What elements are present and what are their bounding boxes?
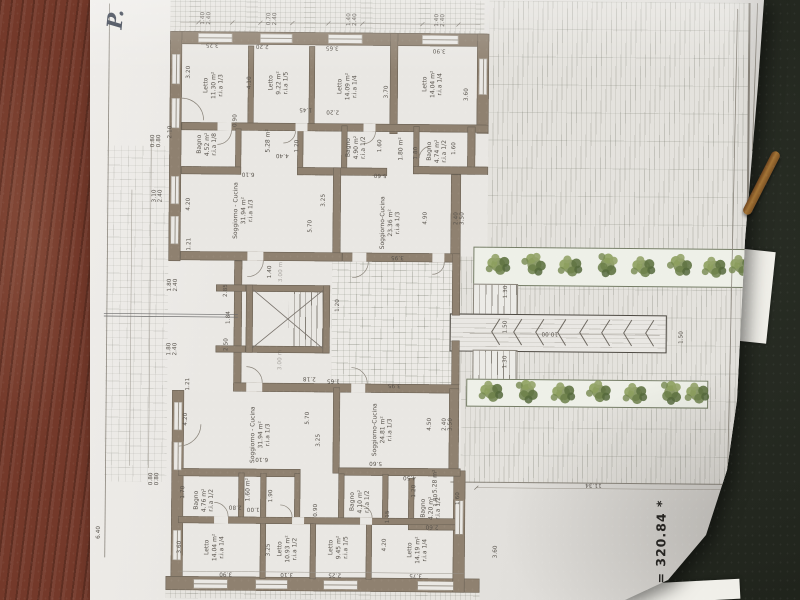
room-name: Bagno [426, 139, 434, 163]
dimension-label: 3.25 [316, 434, 322, 447]
dimension-label: 1.20 [411, 485, 417, 498]
stairwell-steps [289, 290, 324, 348]
dimension-label: 5.60 [369, 460, 382, 466]
dimension-label: 1.60 [451, 142, 457, 155]
dimension-label: 3.60 [493, 545, 499, 558]
room-ria: r.i.a 1/2 [292, 535, 300, 562]
dimension-label: 3.60 [464, 88, 470, 101]
dimension-label: 4.90 [423, 212, 429, 225]
dimension-label: 10.00 [541, 330, 558, 336]
dimension-label: 3.25 [266, 543, 272, 556]
room-label-l-bagno-420: Bagno4.20 m²r.i.a 1/2 [420, 496, 443, 520]
dimension-label: 2.50 [223, 338, 229, 351]
wall-segment [332, 387, 340, 473]
room-area: 5.28 m² [431, 470, 439, 494]
dimension-label: 5.70 [307, 220, 313, 233]
room-ria: r.i.a 1/5 [343, 536, 351, 560]
room-area: 1.80 m² [397, 137, 405, 161]
dimension-label: 1.60 [455, 492, 461, 505]
dimension-label: 2.20 [326, 108, 339, 114]
dimension-label: 4.20 [382, 538, 388, 551]
room-name: Bagno [196, 132, 204, 156]
dimension-label: 1.84 [226, 311, 232, 324]
room-ria: r.i.a 1/4 [437, 71, 445, 98]
door-opening [295, 123, 307, 131]
room-area: 4.52 m² [203, 133, 211, 157]
wall-segment [366, 524, 372, 580]
dimension-label: 6.40 [96, 526, 102, 539]
wall-segment [389, 33, 398, 134]
dimension-label: 1.21 [186, 238, 192, 251]
wall-segment [260, 473, 266, 521]
wall-segment [246, 285, 254, 353]
dimension-label: 5.70 [305, 412, 311, 425]
room-label-u-sogg-3194: Soggiorno - Cucina31.94 m²r.i.a 1/3 [232, 182, 256, 239]
window [260, 34, 292, 43]
window [171, 176, 179, 204]
room-label-u-bagno-474: Bagno4.74 m²r.i.a 1/2 [426, 139, 449, 163]
room-label-l-letto-1404: Letto14.04 m²r.i.a 1/4 [203, 534, 226, 562]
room-ria: r.i.a 1/3 [247, 182, 255, 239]
paper-sheet-wrap: 1.40 2.400.70 2.401.40 2.401.40 2.403.25… [0, 0, 800, 600]
access-ramp [450, 313, 667, 353]
room-ria: r.i.a 1/3 [394, 196, 402, 249]
exterior-stairs-lower [472, 350, 517, 381]
wall-segment [448, 388, 459, 474]
wall-segment [332, 167, 341, 261]
window [170, 216, 178, 244]
dimension-label: 11.34 [585, 481, 602, 487]
room-label-l-hall: 5.28 m² [431, 470, 439, 494]
room-area: 4.10 m² [356, 490, 364, 514]
dimension-label: 1.20 [335, 299, 341, 312]
dimension-label: 3.10 2.40 [152, 189, 165, 202]
dimension-label: 4.50 [403, 474, 416, 480]
window [174, 442, 182, 470]
dimension-label: 3.75 [409, 572, 422, 578]
terrace-hatch-upper [487, 1, 750, 253]
wall-segment [310, 523, 316, 579]
dimension-label: 1.00 [247, 506, 260, 512]
dimension-label: 3.25 [321, 194, 327, 207]
dimension-label: 3.25 [206, 41, 219, 47]
window [328, 34, 362, 43]
window [417, 581, 453, 590]
dimension-label: 1.40 2.40 [434, 14, 447, 27]
dimension-label: 1.40 [267, 265, 273, 278]
room-name: Soggiorno - Cucina [232, 182, 240, 239]
dimension-label: 1.80 2.40 [166, 343, 179, 356]
room-name: Bagno [345, 136, 353, 160]
room-name: Bagno [193, 488, 201, 512]
room-area: 4.90 m² [352, 136, 360, 160]
room-area: 9.22 m² [275, 71, 283, 95]
room-name: Soggiorno-Cucina [371, 403, 379, 456]
room-label-u-bagno-452: Bagno4.52 m²r.i.a 1/8 [196, 132, 219, 156]
wall-segment [308, 46, 315, 130]
dimension-label: 6.10 [242, 170, 255, 176]
wall-segment [246, 285, 330, 293]
room-ria: r.i.a 1/8 [211, 133, 219, 157]
exterior-stairs-upper [473, 284, 518, 316]
room-ria: r.i.a 1/3 [264, 406, 272, 463]
dimension-label: 1.20 [294, 140, 300, 153]
dimension-label: 2.25 [328, 571, 341, 577]
room-name: Letto [327, 536, 335, 560]
dimension-label: 3.90 [433, 47, 446, 53]
room-label-u-bagno-490: Bagno4.90 m²r.i.a 1/2 [345, 136, 368, 160]
wall-segment [294, 473, 300, 521]
dimension-label: 3.95 [388, 382, 401, 388]
wall-segment [246, 346, 330, 354]
room-ria: r.i.a 1/2 [364, 490, 372, 514]
dimension-label: 3.70 [384, 85, 390, 98]
dimension-label: 4.20 [183, 413, 189, 426]
dimension-label: 4.20 [186, 198, 192, 211]
dimension-label: 2.20 [256, 43, 269, 49]
dimension-label: 1.50 [679, 331, 685, 344]
dimension-label: 5.60 [374, 172, 387, 178]
door-opening [352, 253, 366, 262]
door-opening [214, 516, 228, 523]
dimension-label: 0.80 0.80 [150, 134, 163, 147]
wall-segment [338, 473, 344, 521]
wall-segment [323, 285, 331, 353]
room-ria: r.i.a 1/2 [441, 140, 449, 164]
dimension-label: 1.65 [327, 377, 340, 383]
room-label-l-bagno-410: Bagno4.10 m²r.i.a 1/2 [349, 490, 372, 514]
dimension-label: 2.10 [167, 126, 173, 139]
door-opening [292, 517, 304, 524]
paper-sheet: 1.40 2.400.70 2.401.40 2.401.40 2.403.25… [0, 0, 800, 600]
door-opening [217, 122, 231, 130]
dimension-label: 1.21 [185, 378, 191, 391]
window [174, 402, 182, 430]
room-label-l-closet: 1.60 m² [244, 478, 252, 502]
room-area: 1.60 m² [244, 478, 252, 502]
wall-segment [181, 166, 241, 175]
dimension-label: 1.30 [503, 285, 509, 298]
room-ria: r.i.a 1/2 [435, 497, 443, 521]
door-opening [351, 384, 365, 393]
room-ria: r.i.a 1/4 [219, 534, 227, 561]
room-name: Letto [267, 71, 275, 95]
dimension-label: 1.15 [385, 510, 391, 523]
dimension-label: 4.50 [427, 418, 433, 431]
dimension-label: 2.40 3.50 [453, 212, 466, 225]
wall-segment [233, 261, 242, 385]
room-area: 4.74 m² [433, 140, 441, 164]
door-opening [360, 518, 372, 525]
window [171, 98, 179, 128]
dimension-label: 0.90 [313, 504, 319, 517]
handwritten-note: P. [102, 0, 130, 30]
room-ria: r.i.a 1/4 [422, 537, 430, 564]
window [422, 35, 458, 44]
room-label-l-letto-945: Letto9.45 m²r.i.a 1/5 [327, 536, 350, 560]
dimension-label: 0.90 [232, 114, 238, 127]
room-label-l-letto-1093: Letto10.93 m²r.i.a 1/2 [276, 535, 299, 563]
planter-strip-lower [466, 379, 708, 409]
dimension-label: 2.60 [426, 523, 439, 529]
dimension-label: 1.80 2.40 [167, 279, 180, 292]
door-opening [432, 253, 444, 262]
room-name: Soggiorno-Cucina [379, 196, 387, 249]
room-label-l-bagno-476: Bagno4.76 m²r.i.a 1/2 [193, 488, 216, 512]
wall-segment [452, 253, 461, 315]
dimension-label: 4.10 [247, 76, 253, 89]
room-label-l-sogg-2481: Soggiorno-Cucina24.81 m²r.i.a 1/3 [371, 403, 394, 456]
dimension-label: 2.85 [223, 284, 229, 297]
dimension-label: 3.90 [219, 570, 232, 576]
dimension-label: 1.60 [377, 139, 383, 152]
dimension-label: 1.45 [299, 106, 312, 112]
door-opening [363, 124, 375, 132]
room-ria: r.i.a 1/5 [283, 71, 291, 95]
entrance-landing-tiles [331, 261, 452, 388]
room-label-u-hall: 5.28 m² [264, 129, 272, 153]
window [172, 54, 180, 84]
room-ria: r.i.a 1/2 [208, 489, 216, 513]
dimension-label: 4.40 [276, 152, 289, 158]
window [323, 580, 357, 589]
room-ria: r.i.a 1/2 [360, 136, 368, 160]
planter-strip-upper [473, 247, 754, 288]
photo-of-floorplan: 1.40 2.400.70 2.401.40 2.401.40 2.403.25… [0, 0, 800, 600]
room-label-u-letto-1409: Letto14.09 m²r.i.a 1/4 [336, 73, 359, 101]
dimension-label: 3.00 m [278, 262, 284, 282]
scale-annotation: SC = 320.84 * [653, 499, 669, 600]
room-name: Bagno [420, 496, 428, 520]
wall-segment [216, 345, 246, 352]
room-label-u-letto-1404: Letto14.04 m²r.i.a 1/4 [421, 71, 444, 99]
dimension-label: 0.70 2.40 [266, 12, 279, 25]
dimension-label: 3.60 [177, 541, 183, 554]
room-ria: r.i.a 1/3 [386, 403, 394, 456]
window [255, 580, 287, 589]
dimension-label: 1.90 [268, 489, 274, 502]
room-label-l-letto-1419: Letto14.19 m²r.i.a 1/4 [406, 536, 429, 564]
dimension-label: 3.20 [186, 66, 192, 79]
room-name: Bagno [349, 490, 357, 514]
room-area: 4.76 m² [200, 489, 208, 513]
room-label-u-sogg-2336: Soggiorno-Cucina23.36 m²r.i.a 1/3 [379, 196, 402, 249]
room-area: 4.20 m² [427, 496, 435, 520]
dimension-label: 3.00 m [277, 350, 283, 370]
dimension-label: 3.95 [391, 254, 404, 260]
dimension-label: 2.40 3.50 [442, 418, 455, 431]
window [193, 579, 227, 588]
room-label-u-closet: 1.80 m² [397, 137, 405, 161]
room-label-u-letto-1130: Letto11.30 m²r.i.a 1/3 [202, 72, 225, 100]
window [455, 500, 463, 534]
wall-segment [338, 467, 460, 476]
wall-segment [216, 284, 246, 291]
door-opening [246, 383, 262, 392]
dimension-label: 1.50 [503, 320, 509, 333]
room-label-u-letto-922: Letto9.22 m²r.i.a 1/5 [267, 71, 290, 95]
window [479, 59, 487, 95]
dimension-label: 0.80 0.80 [148, 472, 161, 485]
dimension-label: 1.30 [502, 355, 508, 368]
dimension-label: 2.18 [303, 375, 316, 381]
room-area: 5.28 m² [264, 129, 272, 153]
dimension-label: 3.65 [326, 44, 339, 50]
dimension-label: 1.40 2.40 [346, 13, 359, 26]
room-name: Soggiorno - Cucina [249, 406, 257, 463]
room-ria: r.i.a 1/3 [218, 72, 226, 99]
door-opening [247, 252, 263, 261]
room-label-l-sogg-3194: Soggiorno - Cucina31.94 m²r.i.a 1/3 [249, 406, 273, 463]
dimension-label: 3.10 [280, 571, 293, 577]
dimension-label: 2.80 [229, 503, 242, 509]
dimension-label: 1.80 [413, 147, 419, 160]
dimension-label: 1.40 2.40 [200, 12, 213, 25]
dimension-label: 1.70 [180, 486, 186, 499]
floor-plan-drawing: 1.40 2.400.70 2.401.40 2.401.40 2.403.25… [0, 0, 800, 600]
room-ria: r.i.a 1/4 [352, 73, 360, 100]
